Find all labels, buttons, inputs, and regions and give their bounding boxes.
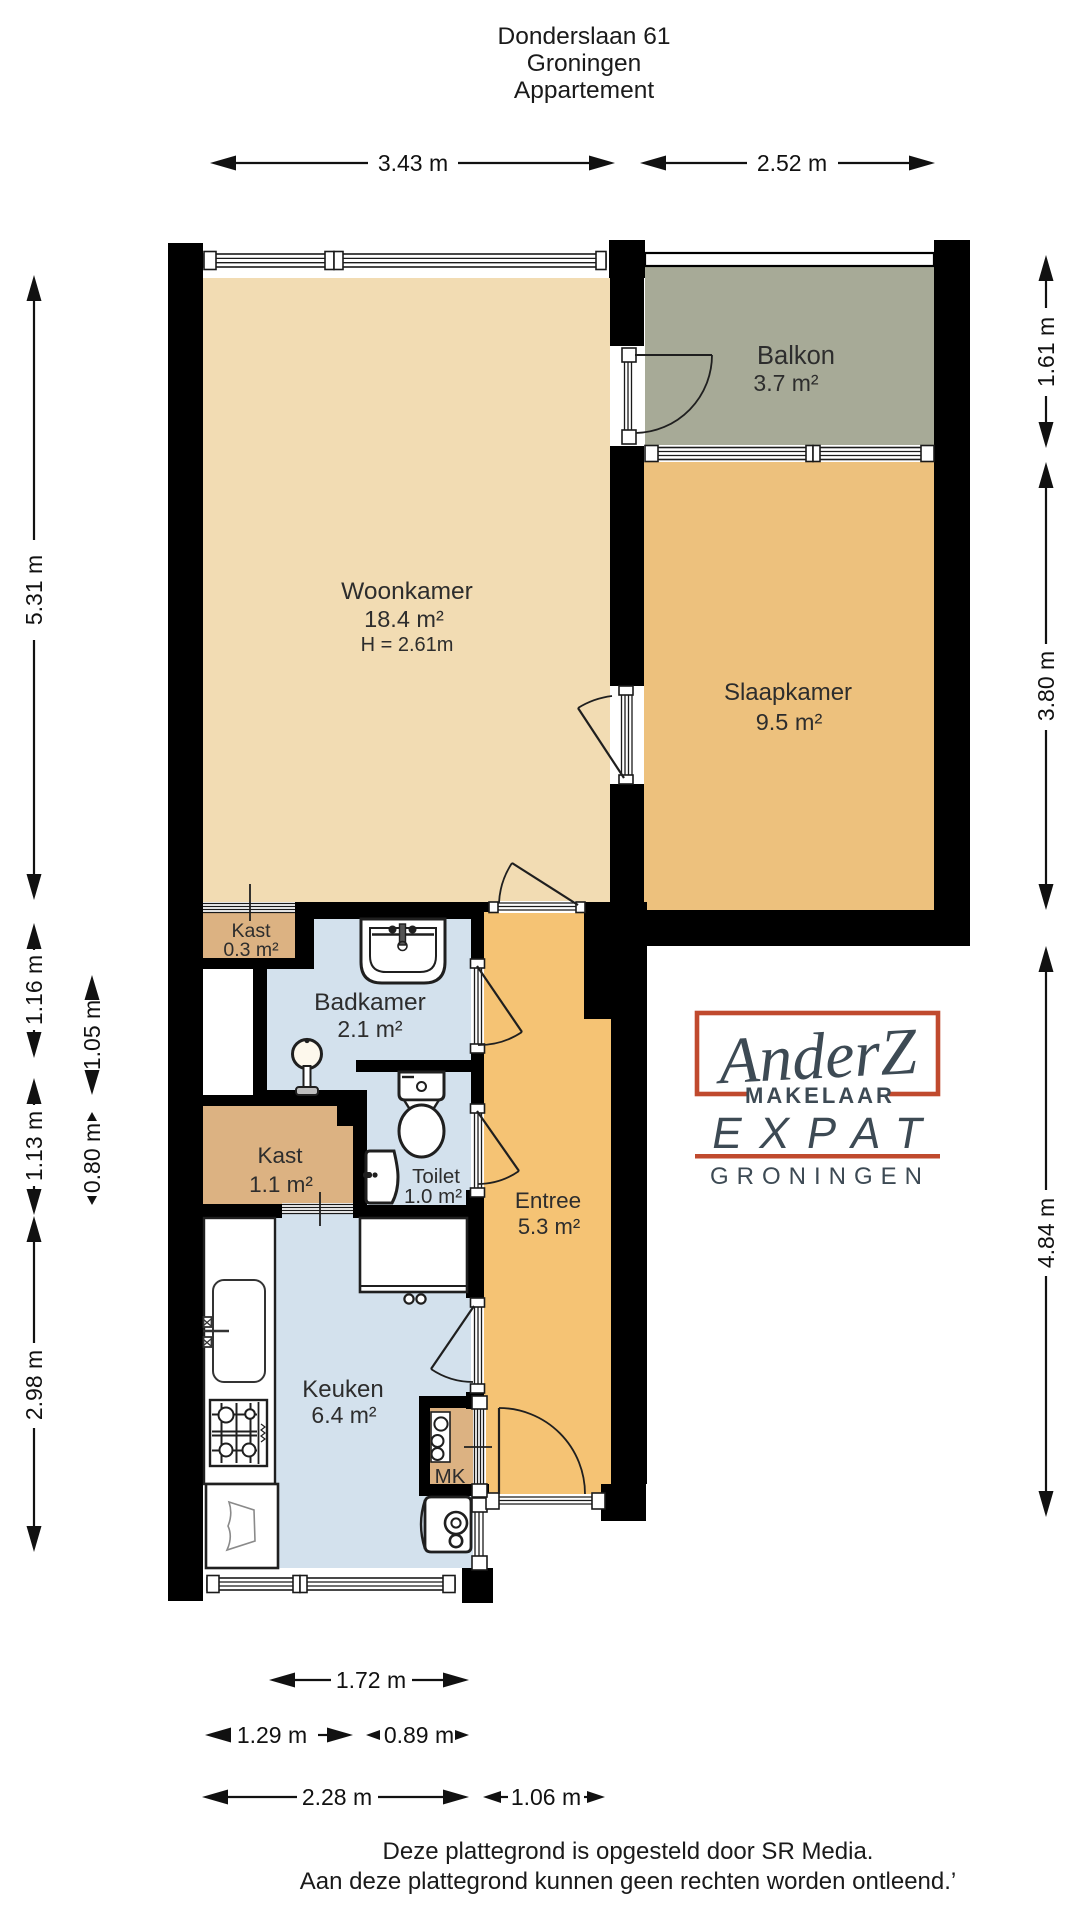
svg-text:0.3 m²: 0.3 m² xyxy=(223,939,279,961)
svg-text:2.98 m: 2.98 m xyxy=(21,1350,47,1420)
svg-text:1.16 m: 1.16 m xyxy=(21,955,47,1025)
svg-text:2.52 m: 2.52 m xyxy=(757,150,827,176)
svg-text:2.28 m: 2.28 m xyxy=(302,1784,372,1810)
svg-text:6.4 m²: 6.4 m² xyxy=(311,1402,377,1428)
svg-text:0.80 m: 0.80 m xyxy=(79,1123,105,1193)
svg-text:3.80 m: 3.80 m xyxy=(1033,651,1059,721)
svg-text:Balkon: Balkon xyxy=(757,342,835,370)
svg-text:1.06 m: 1.06 m xyxy=(511,1784,581,1810)
svg-text:EXPAT: EXPAT xyxy=(708,1109,944,1158)
svg-text:4.84 m: 4.84 m xyxy=(1033,1198,1059,1268)
svg-text:0.89 m: 0.89 m xyxy=(384,1722,454,1748)
svg-text:9.5 m²: 9.5 m² xyxy=(756,709,823,735)
svg-text:H = 2.61m: H = 2.61m xyxy=(361,634,454,656)
svg-text:5.3 m²: 5.3 m² xyxy=(518,1214,580,1239)
svg-text:1.1 m²: 1.1 m² xyxy=(249,1172,313,1197)
svg-text:Donderslaan 61: Donderslaan 61 xyxy=(498,23,671,50)
svg-text:1.13 m: 1.13 m xyxy=(21,1111,47,1181)
svg-text:1.05 m: 1.05 m xyxy=(79,1000,105,1070)
svg-text:1.61 m: 1.61 m xyxy=(1033,317,1059,387)
svg-text:Entree: Entree xyxy=(515,1188,581,1213)
svg-text:Deze plattegrond is opgesteld: Deze plattegrond is opgesteld door SR Me… xyxy=(383,1838,874,1865)
svg-text:MAKELAAR: MAKELAAR xyxy=(745,1083,895,1108)
svg-text:Aan deze plattegrond kunnen ge: Aan deze plattegrond kunnen geen rechten… xyxy=(300,1868,957,1895)
svg-text:18.4 m²: 18.4 m² xyxy=(364,606,444,632)
svg-text:1.72 m: 1.72 m xyxy=(336,1667,406,1693)
svg-text:Keuken: Keuken xyxy=(302,1376,383,1403)
svg-text:2.1 m²: 2.1 m² xyxy=(337,1016,403,1042)
svg-text:1.0 m²: 1.0 m² xyxy=(404,1185,462,1208)
svg-text:Slaapkamer: Slaapkamer xyxy=(724,679,852,706)
svg-text:1.29 m: 1.29 m xyxy=(237,1722,307,1748)
svg-text:3.43 m: 3.43 m xyxy=(378,150,448,176)
svg-text:Badkamer: Badkamer xyxy=(314,989,426,1016)
svg-text:Appartement: Appartement xyxy=(514,77,654,104)
svg-text:3.7 m²: 3.7 m² xyxy=(753,370,819,396)
svg-text:Kast: Kast xyxy=(257,1143,303,1168)
svg-text:GRONINGEN: GRONINGEN xyxy=(710,1163,930,1190)
svg-text:5.31 m: 5.31 m xyxy=(21,555,47,625)
svg-text:Woonkamer: Woonkamer xyxy=(341,578,473,605)
svg-text:MK: MK xyxy=(435,1465,466,1488)
svg-text:Groningen: Groningen xyxy=(527,50,641,77)
